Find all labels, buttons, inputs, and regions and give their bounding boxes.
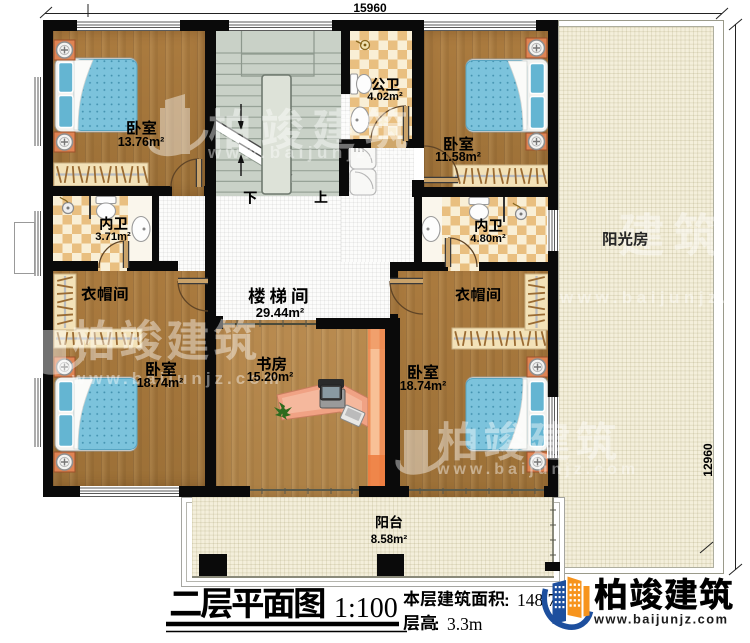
svg-text:4.80m²: 4.80m² xyxy=(470,233,506,245)
svg-text:15.20m²: 15.20m² xyxy=(247,370,294,384)
svg-text:1:100: 1:100 xyxy=(334,593,398,624)
svg-text:4.02m²: 4.02m² xyxy=(367,91,403,103)
svg-text:15960: 15960 xyxy=(353,1,387,15)
svg-text:11.58m²: 11.58m² xyxy=(435,150,481,164)
svg-text:www.baijunjz.com: www.baijunjz.com xyxy=(559,288,750,307)
svg-text:12960: 12960 xyxy=(701,443,715,477)
svg-text:13.76m²: 13.76m² xyxy=(118,135,165,149)
svg-text:www.baijunjz.com: www.baijunjz.com xyxy=(207,143,427,162)
svg-text:18.74m²: 18.74m² xyxy=(137,376,184,390)
svg-text:3.3m: 3.3m xyxy=(447,614,483,634)
svg-text:www.baijunjz.com: www.baijunjz.com xyxy=(593,612,728,627)
svg-text:www.baijunjz.com: www.baijunjz.com xyxy=(436,461,639,478)
svg-text::: : xyxy=(504,591,510,610)
svg-text:29.44m²: 29.44m² xyxy=(256,305,305,320)
svg-text::: : xyxy=(434,615,440,634)
svg-text:8.58m²: 8.58m² xyxy=(371,534,408,546)
svg-text:148.7: 148.7 xyxy=(517,590,557,610)
svg-text:18.74m²: 18.74m² xyxy=(400,379,447,393)
svg-text:3.71m²: 3.71m² xyxy=(95,231,131,243)
